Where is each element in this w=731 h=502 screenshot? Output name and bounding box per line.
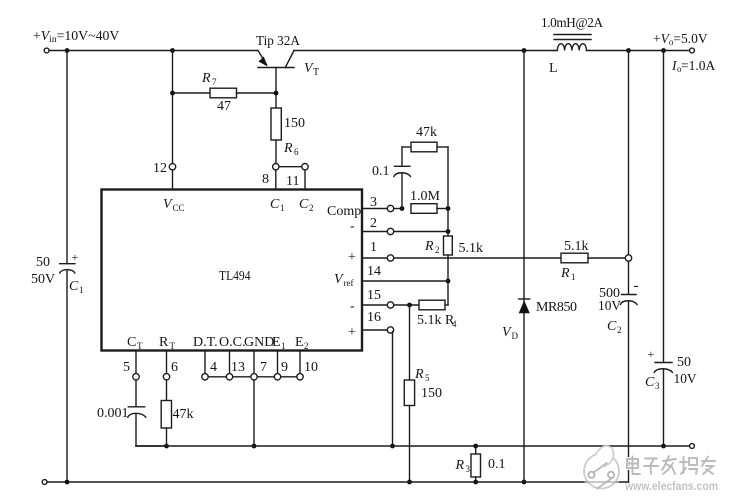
svg-text:2: 2 — [370, 216, 377, 231]
svg-text:D: D — [512, 331, 519, 341]
svg-text:R: R — [424, 239, 434, 254]
svg-text:www.elecfans.com: www.elecfans.com — [624, 479, 718, 493]
svg-text:13: 13 — [231, 360, 245, 375]
svg-text:1: 1 — [370, 240, 377, 255]
svg-text:D.T.: D.T. — [193, 335, 218, 350]
svg-text:R: R — [201, 71, 211, 86]
svg-text:C: C — [607, 319, 617, 334]
svg-text:=1.0A: =1.0A — [681, 58, 715, 73]
svg-text:+: + — [72, 250, 79, 264]
svg-text:16: 16 — [367, 310, 381, 325]
svg-text:C: C — [127, 335, 136, 350]
svg-text:1: 1 — [280, 203, 285, 213]
svg-text:0.001: 0.001 — [97, 406, 129, 421]
svg-text:C: C — [270, 197, 280, 212]
svg-text:2: 2 — [617, 325, 622, 335]
svg-text:R: R — [414, 367, 424, 382]
svg-text:5.1k: 5.1k — [459, 241, 484, 256]
svg-text:5.1k: 5.1k — [564, 239, 589, 254]
svg-text:-: - — [350, 219, 355, 234]
svg-text:3: 3 — [370, 195, 377, 210]
svg-text:R: R — [283, 141, 293, 156]
svg-text:9: 9 — [281, 360, 288, 375]
svg-text:10: 10 — [304, 360, 318, 375]
svg-text:E: E — [272, 335, 281, 350]
svg-text:2: 2 — [304, 341, 309, 351]
svg-text:+Vin=10V~40V: +Vin=10V~40V — [33, 28, 119, 45]
svg-text:4: 4 — [210, 360, 217, 375]
svg-text:6: 6 — [171, 360, 178, 375]
svg-text:50: 50 — [36, 255, 50, 270]
svg-text:8: 8 — [262, 172, 269, 187]
svg-text:47: 47 — [217, 99, 231, 114]
svg-text:-: - — [350, 299, 355, 314]
svg-text:1.0M: 1.0M — [410, 189, 441, 204]
svg-text:150: 150 — [421, 386, 442, 401]
svg-text:+: + — [348, 325, 356, 340]
svg-text:5.1k R: 5.1k R — [417, 313, 455, 328]
svg-text:7: 7 — [212, 77, 217, 87]
svg-text:0.1: 0.1 — [372, 164, 390, 179]
svg-text:1: 1 — [571, 272, 576, 282]
svg-text:+: + — [648, 347, 655, 361]
svg-text:R: R — [455, 458, 465, 473]
svg-text:47k: 47k — [173, 407, 194, 422]
svg-text:V: V — [502, 325, 512, 340]
svg-text:50V: 50V — [31, 272, 55, 287]
svg-text:V: V — [163, 197, 173, 212]
svg-text:C: C — [69, 279, 79, 294]
svg-text:0.1: 0.1 — [488, 457, 506, 472]
svg-text:MR850: MR850 — [536, 300, 577, 315]
svg-text:CC: CC — [173, 203, 185, 213]
svg-text:10V: 10V — [598, 298, 621, 313]
svg-text:C: C — [645, 375, 655, 390]
svg-text:E: E — [295, 335, 304, 350]
svg-text:C: C — [299, 197, 309, 212]
svg-text:150: 150 — [284, 116, 305, 131]
svg-text:+Vo=5.0V: +Vo=5.0V — [653, 31, 708, 47]
svg-text:-: - — [634, 278, 639, 294]
svg-text:10V: 10V — [674, 371, 697, 386]
svg-text:12: 12 — [153, 161, 167, 176]
svg-text:T: T — [313, 67, 319, 78]
svg-text:14: 14 — [367, 264, 381, 279]
svg-text:15: 15 — [367, 288, 381, 303]
svg-text:GND: GND — [244, 335, 274, 350]
svg-text:T: T — [137, 341, 143, 351]
svg-text:3: 3 — [655, 381, 660, 391]
svg-text:4: 4 — [452, 319, 457, 329]
svg-text:2: 2 — [309, 203, 314, 213]
svg-text:ref: ref — [344, 278, 354, 288]
svg-text:Comp: Comp — [327, 204, 361, 219]
svg-text:5: 5 — [425, 373, 430, 383]
svg-text:TL494: TL494 — [219, 269, 251, 284]
svg-text:R: R — [159, 335, 169, 350]
svg-text:2: 2 — [435, 245, 440, 255]
svg-text:1.0mH@2A: 1.0mH@2A — [541, 15, 603, 30]
svg-text:7: 7 — [260, 360, 267, 375]
svg-text:3: 3 — [466, 464, 471, 474]
svg-text:11: 11 — [286, 174, 299, 189]
svg-text:R: R — [560, 266, 570, 281]
svg-text:47k: 47k — [416, 125, 437, 140]
svg-text:1: 1 — [79, 285, 84, 295]
svg-text:V: V — [334, 272, 344, 287]
svg-text:O.C.: O.C. — [219, 335, 245, 350]
svg-text:6: 6 — [294, 147, 299, 157]
svg-text:1: 1 — [281, 341, 286, 351]
svg-text:+: + — [348, 250, 356, 265]
svg-text:Tip 32A: Tip 32A — [256, 33, 300, 48]
svg-text:T: T — [170, 341, 176, 351]
svg-text:5: 5 — [123, 360, 130, 375]
svg-text:L: L — [549, 61, 558, 76]
svg-text:50: 50 — [677, 355, 691, 370]
